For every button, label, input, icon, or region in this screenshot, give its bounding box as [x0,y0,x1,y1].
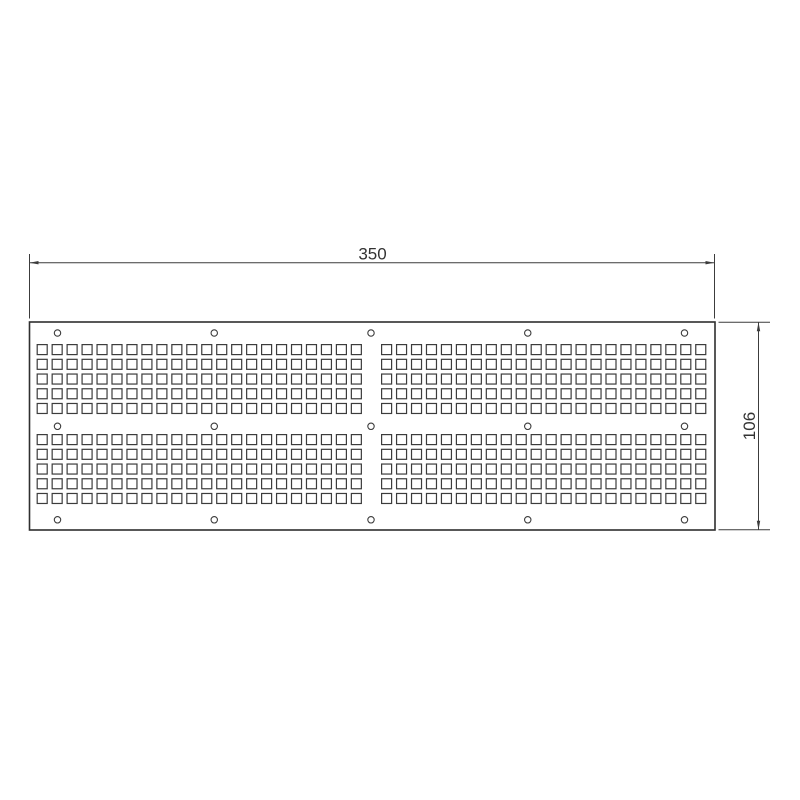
width-dimension-arrow-right [706,261,715,264]
width-dimension-arrow-left [30,261,39,264]
height-dimension-arrow-bottom [757,521,760,530]
width-dimension-label: 350 [358,244,386,263]
height-dimension-label: 106 [740,412,759,440]
plate-outline [30,322,716,530]
drawing-geometry [30,254,771,530]
drawing-sheet: 350 106 [0,0,800,800]
technical-drawing: 350 106 [0,0,800,800]
height-dimension-arrow-top [757,322,760,331]
